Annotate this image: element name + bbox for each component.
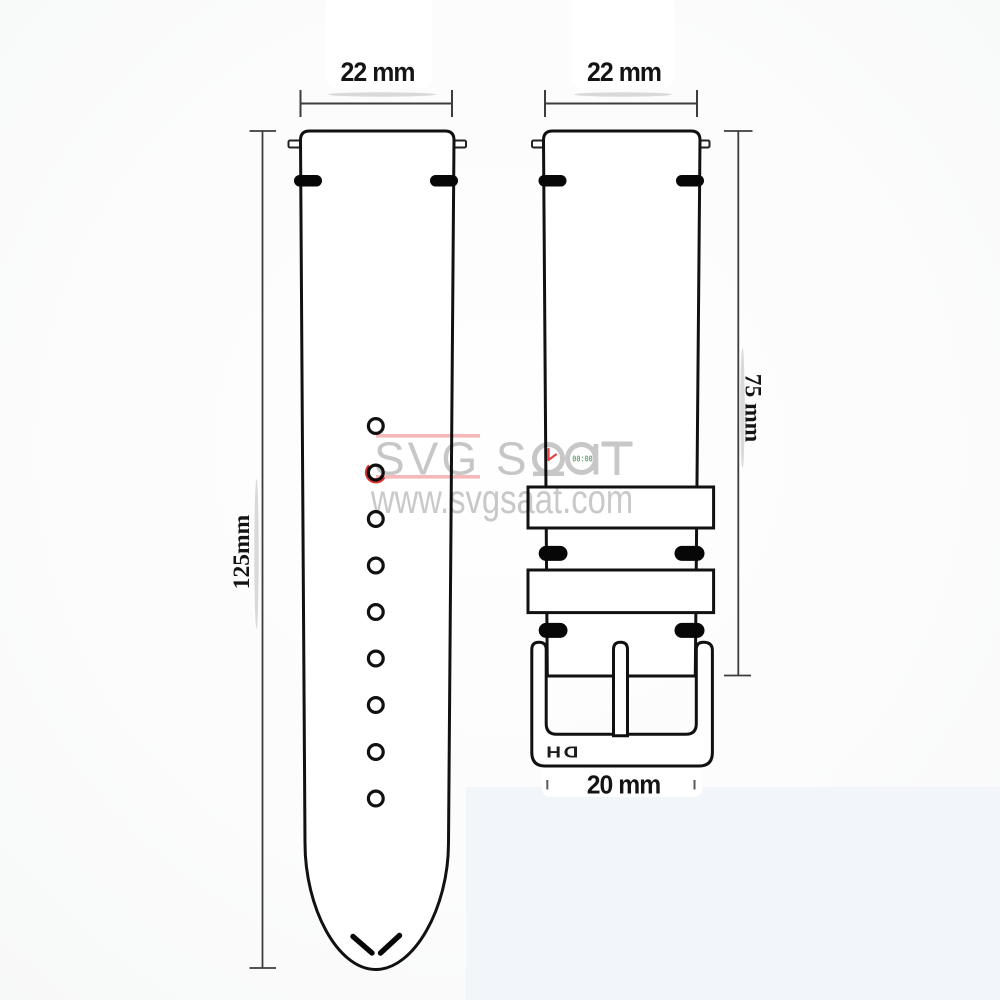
svg-text:22 mm: 22 mm — [587, 58, 661, 87]
svg-text:22 mm: 22 mm — [340, 58, 414, 87]
svg-text:75 mm: 75 mm — [740, 374, 766, 443]
svg-text:125mm: 125mm — [229, 514, 255, 589]
svg-text:www.svgsaat.com: www.svgsaat.com — [370, 475, 633, 521]
svg-text:20 mm: 20 mm — [587, 771, 660, 800]
svg-text:DH: DH — [544, 743, 579, 761]
svg-text:00:00: 00:00 — [572, 455, 593, 465]
